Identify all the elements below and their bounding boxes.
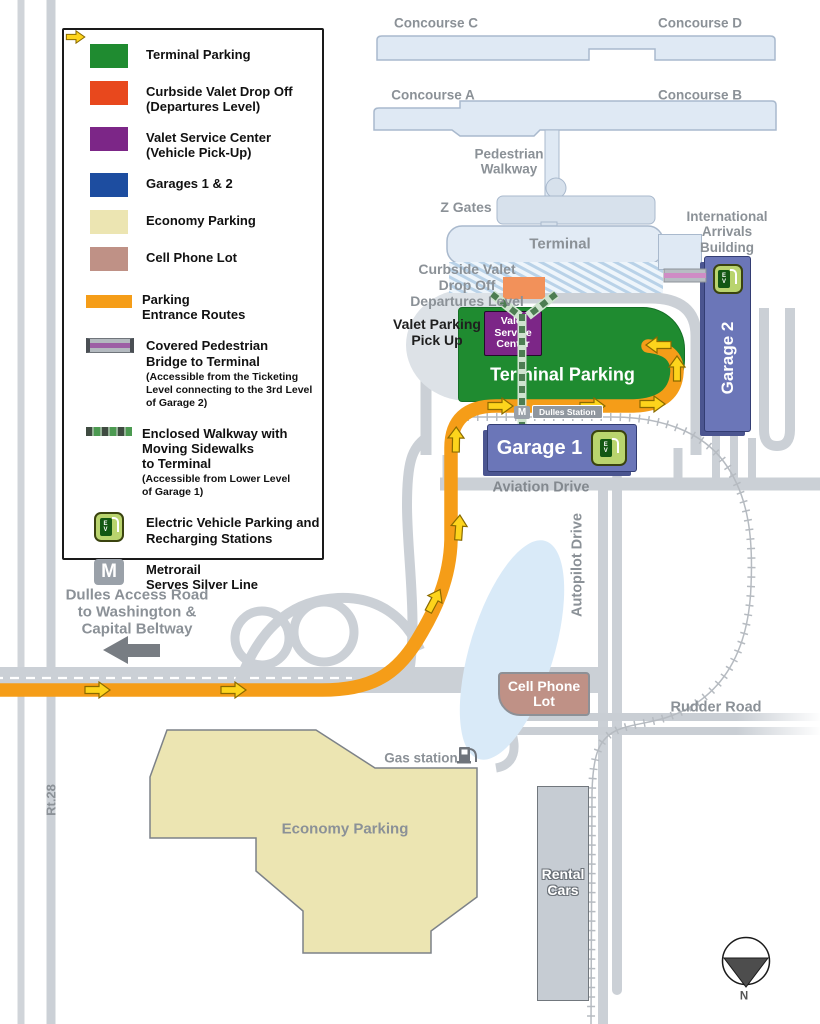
legend-item-valet-service-center: Valet Service Center (Vehicle Pick-Up) <box>90 127 322 160</box>
legend-label: Garages 1 & 2 <box>146 173 233 191</box>
terminal-parking-label: Terminal Parking <box>490 364 635 385</box>
curbside-valet-swatch <box>90 81 128 105</box>
dulles-station-marker: M Dulles Station <box>514 405 603 419</box>
legend-item-economy-parking: Economy Parking <box>90 210 322 234</box>
legend-label: Terminal Parking <box>146 44 251 62</box>
ev-charging-icon: E V <box>94 512 124 542</box>
legend-item-metrorail: M Metrorail Serves Silver Line <box>90 559 322 592</box>
garages-swatch <box>90 173 128 197</box>
legend-note: (Accessible from the Ticketing Level con… <box>146 371 312 410</box>
legend-label: Economy Parking <box>146 210 256 228</box>
ev-charging-icon: E V <box>591 430 627 466</box>
curbside-valet-drop-off-zone <box>503 277 545 299</box>
legend-label: Covered Pedestrian Bridge to Terminal <box>146 335 312 368</box>
legend-label: Cell Phone Lot <box>146 247 237 265</box>
international-arrivals-building <box>658 234 702 270</box>
legend-label: Enclosed Walkway with Moving Sidewalks t… <box>142 423 290 471</box>
legend-label: Parking Entrance Routes <box>142 289 245 322</box>
ev-charging-icon: E V <box>713 264 743 294</box>
rental-cars-lot: Rental Cars <box>537 786 589 1001</box>
enclosed-walkway-swatch <box>86 427 132 436</box>
legend-item-ev-charging: E V Electric Vehicle Parking and Recharg… <box>90 512 322 545</box>
entrance-route-swatch <box>86 295 132 308</box>
legend-label: Valet Service Center (Vehicle Pick-Up) <box>146 127 271 160</box>
garage-1-label: Garage 1 <box>497 437 583 460</box>
legend-item-curbside-valet: Curbside Valet Drop Off (Departures Leve… <box>90 81 322 114</box>
legend-item-entrance-routes: Parking Entrance Routes <box>90 289 322 322</box>
route-arrow-icon <box>64 30 88 44</box>
garage-2: E V Garage 2 <box>704 256 751 432</box>
economy-parking-swatch <box>90 210 128 234</box>
dulles-station-label: Dulles Station <box>532 405 603 419</box>
valet-service-center-swatch <box>90 127 128 151</box>
cell-phone-lot-swatch <box>90 247 128 271</box>
metrorail-icon: M <box>514 406 530 419</box>
cell-phone-lot: Cell Phone Lot <box>498 672 590 716</box>
legend-item-enclosed-walkway: Enclosed Walkway with Moving Sidewalks t… <box>90 423 322 499</box>
pedestrian-bridge-swatch <box>86 338 134 353</box>
legend-label: Electric Vehicle Parking and Recharging … <box>146 512 319 545</box>
metrorail-icon: M <box>94 559 124 585</box>
legend-label: Metrorail Serves Silver Line <box>146 559 258 592</box>
legend-label: Curbside Valet Drop Off (Departures Leve… <box>146 81 293 114</box>
rental-cars-label: Rental Cars <box>542 866 585 898</box>
map-legend: Terminal Parking Curbside Valet Drop Off… <box>62 28 324 560</box>
legend-item-garages: Garages 1 & 2 <box>90 173 322 197</box>
legend-item-cell-phone-lot: Cell Phone Lot <box>90 247 322 271</box>
legend-note: (Accessible from Lower Level of Garage 1… <box>142 473 290 499</box>
airport-parking-map: Terminal Parking Valet Service Center Ga… <box>0 0 820 1024</box>
garage-2-label: Garage 2 <box>718 322 738 395</box>
legend-item-pedestrian-bridge: Covered Pedestrian Bridge to Terminal (A… <box>90 335 322 410</box>
legend-item-terminal-parking: Terminal Parking <box>90 44 322 68</box>
garage-1: Garage 1 E V <box>487 424 637 472</box>
terminal-parking-swatch <box>90 44 128 68</box>
valet-service-center: Valet Service Center <box>484 311 542 356</box>
